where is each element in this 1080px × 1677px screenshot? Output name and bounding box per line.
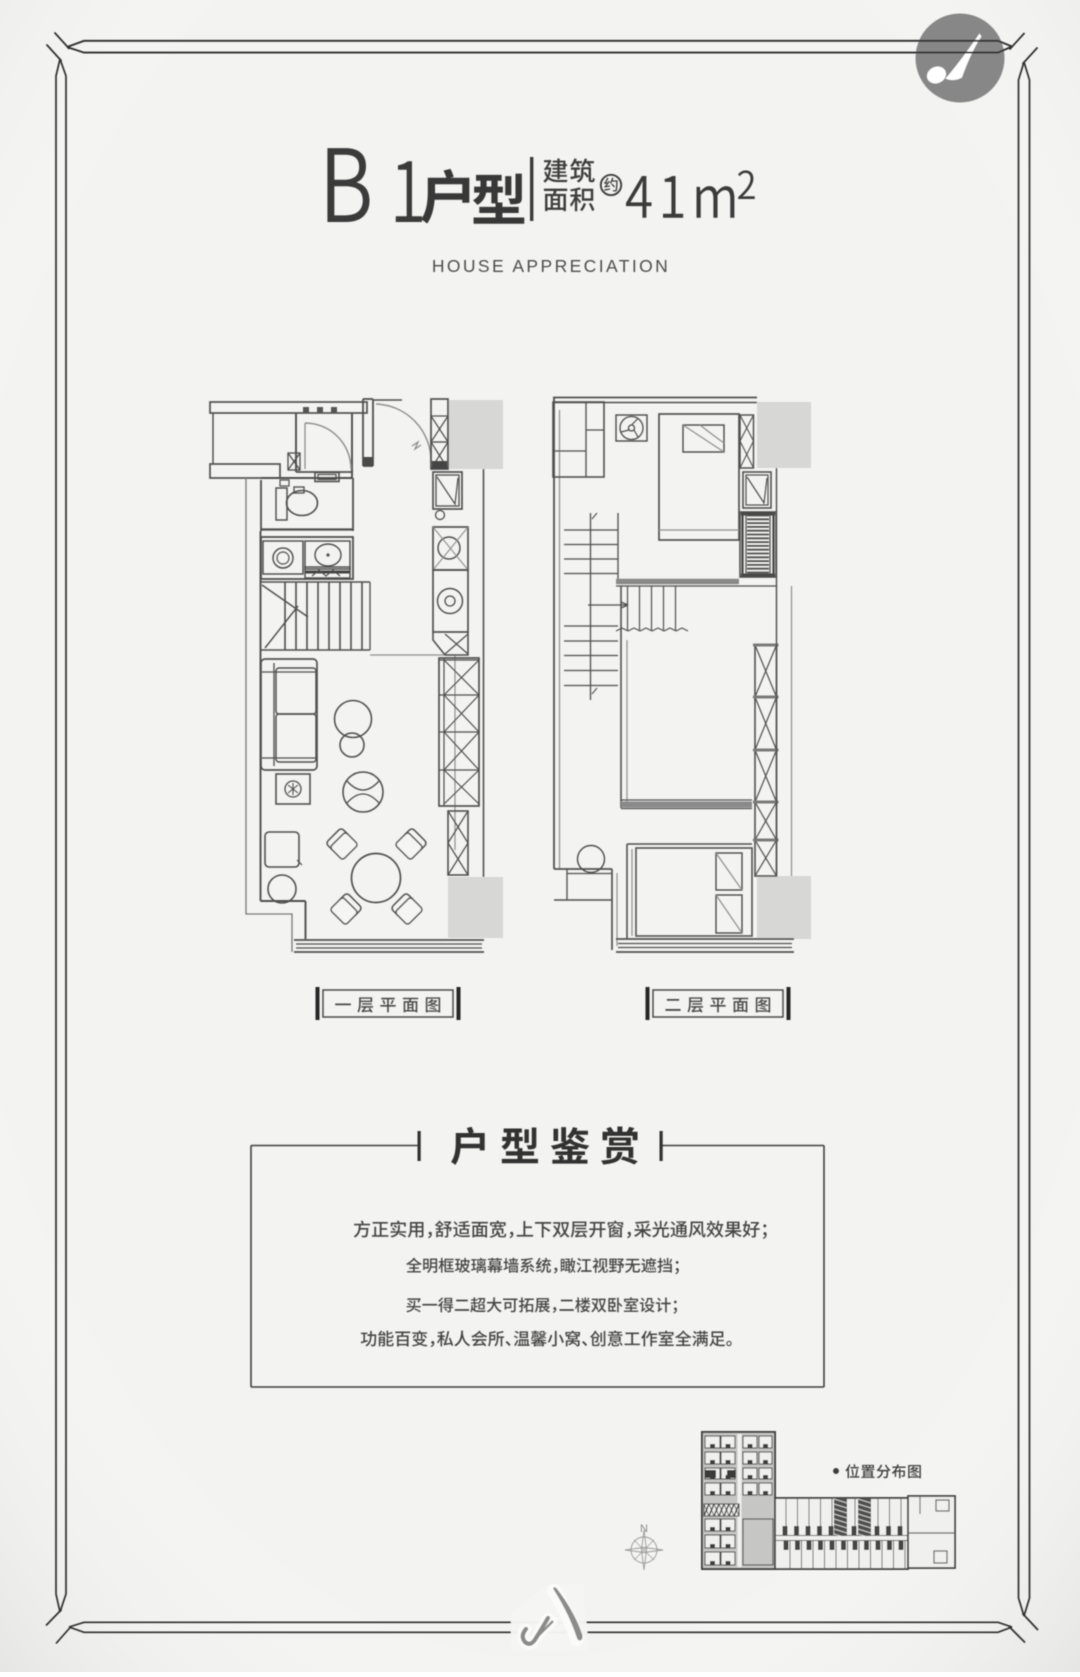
svg-text:HOUSE APPRECIATION: HOUSE APPRECIATION: [432, 256, 670, 276]
svg-text:N: N: [640, 1523, 648, 1535]
